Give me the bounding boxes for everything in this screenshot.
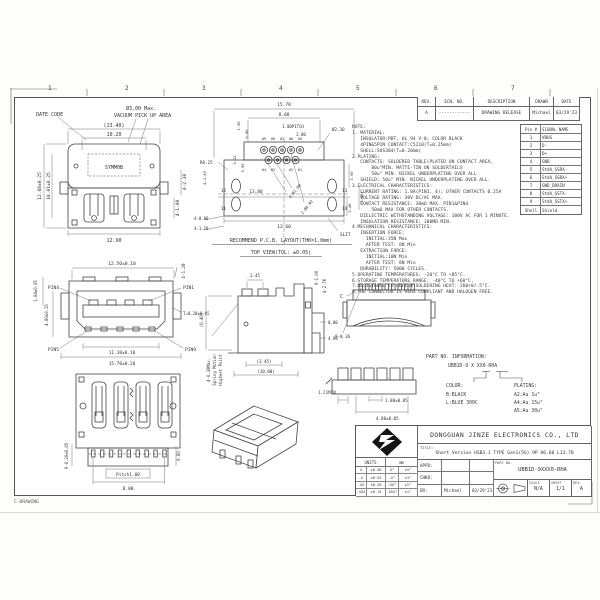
ecn-value: ------------ — [436, 107, 474, 120]
color-option: B:BLACK — [446, 392, 478, 400]
tolerance-row: .XX ±0.20 .XX° ±2° — [356, 482, 418, 489]
appd-label: APPD: — [418, 460, 442, 472]
hole-label: #5 — [298, 137, 302, 141]
scale-cell: SCALE N/A — [528, 480, 550, 497]
color-option: L:BLUE 300C — [446, 400, 478, 408]
dim-height-left: 12.68±0.25 — [37, 172, 43, 200]
appd-row: APPD: — [418, 460, 494, 472]
chkd-row: CHKD: — [418, 472, 494, 484]
shell-top-view: DATE CODE Ø3.00 Max. VACUUM PICK UP AREA… — [28, 100, 200, 244]
dim-holes-ss: 2-Ø0.92 — [300, 198, 315, 215]
pin-table-header: Pin # SIGNAL NAME — [521, 125, 581, 134]
bottom-view: Pitch1.00 8.00 9-0.20±0.05 0.80 — [30, 366, 200, 496]
dim-pad-row: 8.00 — [122, 486, 133, 492]
sheet-value: 1/1 — [550, 487, 571, 492]
rev-cell: REV. A — [572, 480, 592, 497]
dim-off-d: 0.80 — [244, 129, 249, 139]
approvals-table: APPD: CHKD: DR: Michael 03/29'23 — [418, 460, 494, 497]
tol-cell: .XXX° — [386, 489, 399, 496]
notes-block: NOTE:1. MATERIAL: INSULATOR:PBT, UL 94 V… — [352, 125, 518, 296]
revision-table-header: REV. ECN. NO. DESCRIPTION DRAWN DATE — [418, 97, 580, 107]
rear-view: C 9-0.36 — [333, 272, 447, 344]
pin-table-row: 8StdA_SSTX- — [521, 190, 581, 198]
chkd-value — [442, 472, 470, 484]
pin4-label: PIN4 — [48, 285, 59, 291]
dim-slot-c: 4-1.20 — [194, 226, 209, 231]
dim-body: (3.45) — [256, 359, 271, 364]
page-bottom-edge — [0, 512, 600, 513]
dr-date: 03/29'23 — [470, 485, 494, 497]
dim-total: (10.00) — [257, 369, 275, 374]
date-code-label: DATE CODE — [36, 112, 63, 118]
plating-option: A2:Au 1u" — [514, 392, 543, 400]
chkd-label: CHKD: — [418, 472, 442, 484]
dim-height: 4.80±0.15 — [44, 304, 49, 326]
dim-hole-shell: Ø2.30 — [332, 127, 345, 132]
rev-label: REV. — [573, 481, 582, 485]
description-value: DRAWING RELEASE — [474, 107, 530, 120]
hole-label: #2 — [289, 168, 293, 172]
title-block: DONGGUAN JINZE ELECTRONICS CO., LTD TITL… — [355, 425, 591, 496]
dim-width-tongue: 11.10±0.10 — [109, 350, 136, 356]
dim-width-top: 12.50±0.10 — [108, 261, 136, 267]
rev-header-description: DESCRIPTION — [474, 97, 530, 107]
pad-label-13: 13 — [342, 188, 348, 194]
pad-label-12: 12 — [221, 188, 227, 194]
plating-label: PLATING: — [514, 384, 537, 389]
dr-name: Michael — [442, 485, 470, 497]
engineering-drawing-sheet: { "colors": {"ink": "#333333", "line": "… — [0, 0, 600, 600]
rear-outline — [343, 284, 435, 326]
rev-header-drawn: DRAWN — [530, 97, 554, 107]
dim-pcb-width: 15.70 — [277, 102, 291, 108]
top-view-title: TOP VIEW(TOL: ±0.05) — [251, 250, 311, 256]
part-info-block: PART NO. INFORMATION: UBB1D-9 X XX0-RHA … — [418, 352, 586, 416]
units-tolerance-table: UNITS mm X ±0.30 X° ±5° .X ±0.25 .X° ±3°… — [356, 458, 418, 497]
pin-signal-table: Pin # SIGNAL NAME 1VBUS 2D- 3D+ 4GND 5St… — [520, 124, 582, 215]
dim-latch: 2.45 — [250, 273, 261, 278]
hole-label: #3 — [271, 168, 275, 172]
revision-row: A ------------ DRAWING RELEASE Michael 0… — [418, 107, 580, 120]
plating-option: A4:Au 15u" — [514, 400, 543, 408]
title-cell: TITLE: Short Version USB3.1 TYPE Gen1(5G… — [418, 444, 592, 460]
scale-value: N/A — [528, 487, 549, 492]
revision-table: REV. ECN. NO. DESCRIPTION DRAWN DATE A -… — [417, 97, 580, 121]
dim-off-c: 1.56 — [236, 121, 241, 131]
scale-sheet-rev-row: SCALE N/A SHEET 1/1 REV. A — [494, 480, 592, 497]
front-outline — [61, 277, 181, 337]
hole-label: #7 — [280, 137, 284, 141]
dim-height-inner: 10.01±0.25 — [46, 172, 52, 200]
drawing-title: Short Version USB3.1 TYPE Gen1(5G) 9P H6… — [418, 451, 591, 456]
dim-tail-span: 4.00±0.05 — [376, 416, 399, 421]
pin-table-row: 2D- — [521, 142, 581, 150]
section-label: C — [340, 294, 343, 300]
appd-value — [442, 460, 470, 472]
tol-cell: .X° — [386, 474, 399, 481]
pin5-label: PIN5 — [48, 347, 59, 353]
dim-tail-min: 1.21MIN — [318, 390, 336, 395]
pin-table-row: 1VBUS — [521, 134, 581, 142]
rev-header-ecn: ECN. NO. — [436, 97, 474, 107]
part-no-value: UBB1D-9XXX0-RHA — [494, 467, 591, 473]
isometric-outline — [212, 406, 298, 468]
tol-cell: .X — [356, 474, 367, 481]
pad-label-11: 11 — [221, 206, 227, 212]
hole-label: #9 — [262, 137, 266, 141]
vacuum-label-1: Ø3.00 Max. — [126, 105, 156, 112]
hole-label: #1 — [298, 168, 302, 172]
tolerance-row: .XXX ±0.15 .XXX° ±1° — [356, 489, 418, 496]
dr-row: DR: Michael 03/29'23 — [418, 485, 494, 497]
dim-side-ref: (5.96) — [359, 191, 364, 205]
dim-slot-b: 4-0.80 — [194, 216, 209, 221]
color-label: COLOR: — [446, 384, 463, 389]
tol-cell: ±5° — [399, 467, 418, 474]
dim-width-ref: (13.40) — [103, 123, 124, 129]
title-label: TITLE: — [420, 445, 434, 450]
third-angle-projection-icon — [494, 480, 528, 497]
tol-cell: X — [356, 467, 367, 474]
tol-cell: .XXX — [356, 489, 367, 496]
part-no-cell: PART NO. UBB1D-9XXX0-RHA — [494, 460, 592, 480]
dim-width-inner: 10.20 — [106, 132, 121, 138]
dim-legs: 4-2.30 — [182, 173, 188, 190]
pin-table-row: 7GND_DRAIN — [521, 182, 581, 190]
page-right-edge — [597, 88, 598, 512]
spring-label-1: 4-0.30Max. — [206, 358, 211, 382]
dim-tab: 1.84±0.05 — [33, 280, 38, 302]
pcb-view-title: RECOMMEND P.C.B. LAYOUT(THK=1.0mm) — [230, 238, 332, 244]
dim-teeth: 9-0.36 — [335, 334, 351, 339]
ruler-ticks — [0, 0, 600, 100]
dim-len-outer: 13.60 — [277, 224, 291, 230]
tol-cell: ±0.20 — [367, 482, 386, 489]
dim-off-a: 3.12 — [232, 155, 237, 164]
side-outline — [228, 284, 324, 353]
units-value: mm — [386, 458, 418, 467]
plating-option: A5:Au 30u" — [514, 408, 543, 416]
tol-cell: ±3° — [399, 474, 418, 481]
chkd-date — [470, 472, 494, 484]
dim-width-bottom: 12.90 — [106, 238, 121, 244]
hole-label: #8 — [271, 137, 275, 141]
dim-slot-a: 4-1.45 — [202, 171, 207, 185]
drawn-value: Michael — [530, 107, 554, 120]
pin-table-row: 6StdA_SSRX+ — [521, 174, 581, 182]
signal-col-header: SIGNAL NAME — [541, 125, 581, 134]
color-options: B:BLACKL:BLUE 300C — [446, 392, 478, 408]
rev-value: A — [418, 107, 436, 120]
note-line: CURRENT RATING: 1.8A(PIN1, 4); OTHER CON… — [352, 190, 518, 196]
isometric-view — [192, 392, 310, 484]
pin-table-row: 5StdA_SSRX- — [521, 166, 581, 174]
bottom-outline — [76, 374, 180, 466]
dim-pins: 9-1.00 — [314, 270, 319, 285]
dim-row-width: 8.00 — [279, 112, 290, 118]
appd-date — [470, 460, 494, 472]
dim-edge: 0.80 — [176, 451, 181, 461]
tolerance-row: .X ±0.25 .X° ±3° — [356, 474, 418, 481]
tol-cell: ±0.25 — [367, 474, 386, 481]
dim-tail-pitch: 1.00±0.05 — [385, 398, 408, 403]
dim-side-a: 3.90 — [349, 171, 354, 181]
tol-cell: ±0.30 — [367, 467, 386, 474]
dim-side-b: 2.48 — [347, 203, 352, 213]
pin-table-row: 9StdA_SSTX+ — [521, 198, 581, 206]
part-info-leader-lines — [418, 352, 586, 416]
date-code-marking: SYMM0B — [105, 165, 123, 171]
tolerance-row: X ±0.30 X° ±5° — [356, 467, 418, 474]
tol-cell: ±1° — [399, 489, 418, 496]
slit-label: SLIT — [340, 232, 351, 238]
tol-cell: .XX — [356, 482, 367, 489]
sheet-cell: SHEET 1/1 — [550, 480, 572, 497]
spring-label-3: Highest Point — [218, 354, 223, 386]
dim-off-b: 3.50 — [240, 163, 245, 173]
spring-label-2: Spring Motion — [212, 354, 217, 386]
dim-r-notch: R0.25 — [200, 160, 213, 165]
pin-table-row: 3D+ — [521, 150, 581, 158]
dr-label: DR: — [418, 485, 442, 497]
vacuum-label-2: VACUUM PICK UP AREA — [114, 113, 171, 119]
tol-cell: X° — [386, 467, 399, 474]
plating-options: A2:Au 1u"A4:Au 15u"A5:Au 30u" — [514, 392, 543, 416]
sheet-label: SHEET — [551, 481, 562, 485]
rev-header-rev: REV. — [418, 97, 436, 107]
company-logo — [356, 426, 418, 458]
corner-drawing-label: C-DRAWING — [14, 500, 39, 505]
pin9-label: PIN9 — [185, 347, 196, 353]
tol-cell: ±0.15 — [367, 489, 386, 496]
tail-detail-view: 1.21MIN 1.00±0.05 4.00±0.05 — [316, 350, 440, 426]
dim-legs2: 4-1.00 — [175, 199, 181, 216]
dim-corner: 4-1.20 — [181, 263, 186, 279]
tol-cell: .XX° — [386, 482, 399, 489]
part-no-label: PART NO. — [495, 461, 512, 465]
dim-len-inner: 13.80 — [249, 189, 263, 195]
units-label: UNITS — [356, 458, 386, 467]
front-view: 12.50±0.10 4-1.20 PIN4 PIN1 PIN5 PIN9 1.… — [25, 255, 209, 369]
tail-outline — [326, 368, 416, 394]
scale-label: SCALE — [529, 481, 540, 485]
shell-top-outline — [60, 144, 168, 228]
pin-table-row: ShellShield — [521, 206, 581, 214]
rev-value: A — [572, 487, 591, 492]
date-value: 03/29'23 — [554, 107, 580, 120]
projection-cell — [494, 480, 528, 497]
pin1-label: PIN1 — [183, 285, 194, 291]
logo-cell — [356, 426, 418, 458]
hole-label: #4 — [262, 168, 266, 172]
pin-col-header: Pin # — [521, 125, 541, 134]
hole-label: #6 — [289, 137, 293, 141]
dim-pitch: 1.00PITCH — [282, 124, 304, 129]
pcb-layout-view: 15.70 8.00 1.00PITCH 2.00 Ø2.30 R0.25 1.… — [192, 98, 372, 260]
dim-height-ref: (6.40) — [199, 313, 204, 327]
dim-pads: 9-0.20±0.05 — [64, 442, 69, 469]
company-name: DONGGUAN JINZE ELECTRONICS CO., LTD — [418, 426, 592, 444]
dim-pad-pitch: Pitch1.00 — [116, 472, 140, 478]
pin-table-row: 4GND — [521, 158, 581, 166]
dim-tails: 4-2.76 — [322, 278, 327, 293]
rev-header-date: DATE — [554, 97, 580, 107]
pin-table-body: 1VBUS 2D- 3D+ 4GND 5StdA_SSRX- 6StdA_SSR… — [521, 134, 581, 214]
tol-cell: ±2° — [399, 482, 418, 489]
note-line: DIELECTRIC WITHSTANDING VOLTAGE: 100V AC… — [352, 214, 518, 220]
